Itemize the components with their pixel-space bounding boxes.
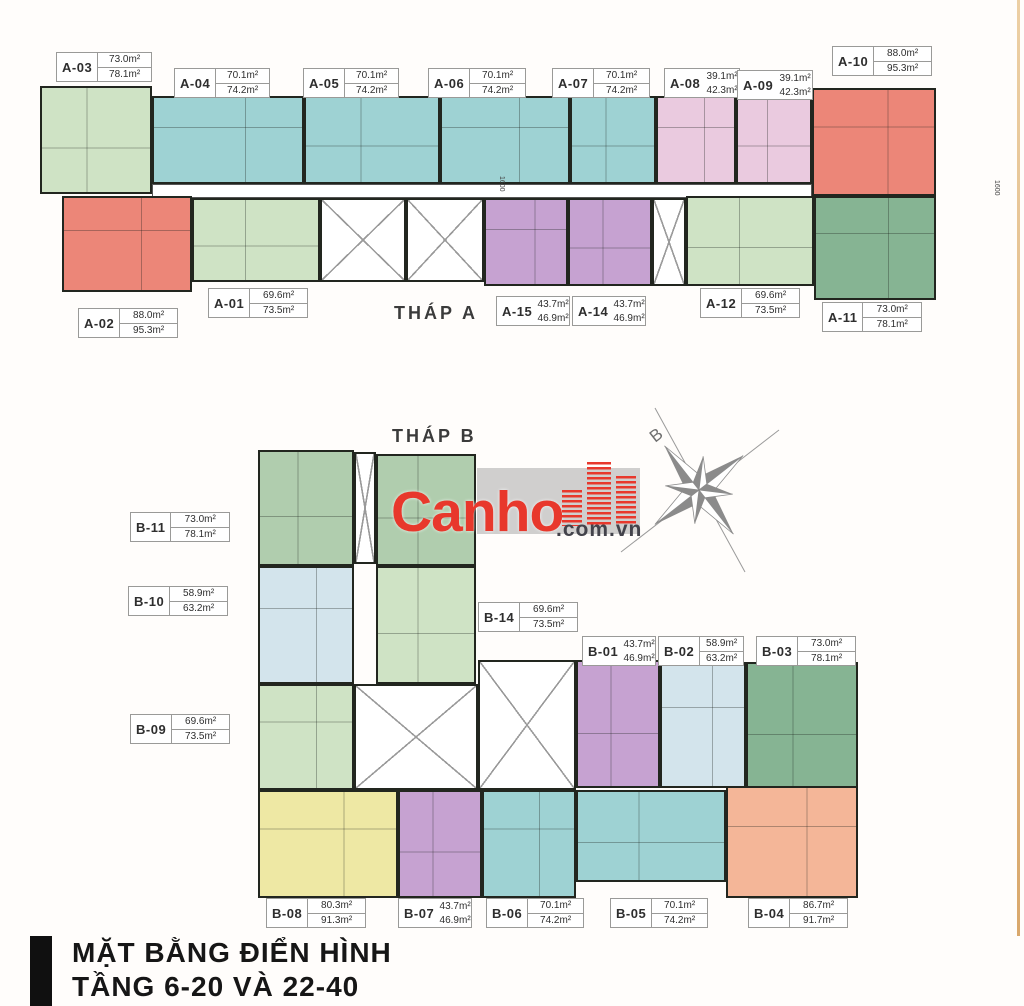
tower-a-label: THÁP A (394, 303, 478, 324)
unit-name: A-01 (209, 289, 249, 317)
unit-b-01 (576, 660, 660, 788)
unit-area-gross: 95.3m² (874, 62, 931, 76)
unit-area-gross: 73.5m² (520, 618, 577, 632)
unit-area-net: 39.1m² (705, 69, 739, 83)
unit-a-01 (192, 198, 320, 282)
unit-b-11 (258, 450, 354, 566)
unit-label-b-09: B-0969.6m²73.5m² (130, 714, 230, 744)
unit-label-a-04: A-0470.1m²74.2m² (174, 68, 270, 98)
unit-b-03 (746, 662, 858, 788)
unit-label-a-03: A-0373.0m²78.1m² (56, 52, 152, 82)
page-edge-line (1017, 0, 1020, 936)
unit-name: A-09 (738, 71, 778, 99)
unit-label-a-01: A-0169.6m²73.5m² (208, 288, 308, 318)
unit-areas: 69.6m²73.5m² (741, 289, 799, 317)
unit-areas: 88.0m²95.3m² (873, 47, 931, 75)
unit-areas: 80.3m²91.3m² (307, 899, 365, 927)
dimension-mark-2: 1600 (993, 180, 1000, 196)
unit-a-05 (304, 96, 440, 184)
unit-area-net: 80.3m² (308, 899, 365, 914)
unit-area-gross: 74.2m² (528, 914, 583, 928)
unit-area-gross: 78.1m² (863, 318, 921, 332)
unit-name: A-14 (573, 297, 613, 325)
core-b-lifts (478, 660, 576, 790)
unit-name: B-02 (659, 637, 699, 665)
title-block: MẶT BẰNG ĐIỂN HÌNH TẦNG 6-20 VÀ 22-40 (30, 936, 392, 1006)
unit-area-net: 43.7m² (537, 297, 569, 311)
unit-name: B-10 (129, 587, 169, 615)
unit-label-b-07: B-0743.7m²46.9m² (398, 898, 472, 928)
unit-area-net: 69.6m² (172, 715, 229, 730)
unit-area-gross: 42.3m² (778, 85, 812, 99)
unit-areas: 69.6m²73.5m² (171, 715, 229, 743)
unit-b-04 (726, 786, 858, 898)
unit-b-05 (576, 790, 726, 882)
unit-areas: 58.9m²63.2m² (699, 637, 743, 665)
unit-area-net: 73.0m² (863, 303, 921, 318)
unit-area-gross: 74.2m² (470, 84, 525, 98)
unit-area-gross: 95.3m² (120, 324, 177, 338)
unit-label-b-10: B-1058.9m²63.2m² (128, 586, 228, 616)
unit-area-net: 70.1m² (652, 899, 707, 914)
unit-areas: 73.0m²78.1m² (862, 303, 921, 331)
unit-label-b-14: B-1469.6m²73.5m² (478, 602, 578, 632)
unit-a-10 (812, 88, 936, 196)
unit-a-12 (686, 196, 814, 286)
unit-area-net: 70.1m² (594, 69, 649, 84)
unit-name: B-05 (611, 899, 651, 927)
unit-label-a-07: A-0770.1m²74.2m² (552, 68, 650, 98)
title-accent-bar (30, 936, 52, 1006)
unit-areas: 70.1m²74.2m² (651, 899, 707, 927)
unit-area-gross: 73.5m² (742, 304, 799, 318)
unit-area-net: 70.1m² (528, 899, 583, 914)
unit-area-gross: 63.2m² (170, 602, 227, 616)
unit-area-net: 73.0m² (171, 513, 229, 528)
unit-area-gross: 74.2m² (216, 84, 269, 98)
core-b-main (354, 684, 478, 790)
dimension-mark-1: 1600 (498, 176, 505, 192)
unit-area-gross: 91.3m² (308, 914, 365, 928)
unit-areas: 73.0m²78.1m² (170, 513, 229, 541)
unit-label-b-06: B-0670.1m²74.2m² (486, 898, 584, 928)
unit-area-gross: 78.1m² (171, 528, 229, 542)
unit-b-06 (482, 790, 576, 898)
core-a-lifts (406, 198, 484, 282)
unit-area-gross: 46.9m² (623, 651, 655, 665)
unit-b-09 (258, 684, 354, 790)
unit-a-11 (814, 196, 936, 300)
unit-name: A-08 (665, 69, 705, 97)
unit-areas: 88.0m²95.3m² (119, 309, 177, 337)
unit-label-a-09: A-0939.1m²42.3m² (737, 70, 813, 100)
unit-name: B-06 (487, 899, 527, 927)
unit-area-gross: 46.9m² (439, 913, 471, 927)
unit-areas: 70.1m²74.2m² (527, 899, 583, 927)
unit-label-a-06: A-0670.1m²74.2m² (428, 68, 526, 98)
unit-areas: 69.6m²73.5m² (519, 603, 577, 631)
unit-areas: 39.1m²42.3m² (705, 69, 739, 97)
unit-label-b-01: B-0143.7m²46.9m² (582, 636, 656, 666)
unit-area-gross: 91.7m² (790, 914, 847, 928)
unit-label-a-12: A-1269.6m²73.5m² (700, 288, 800, 318)
unit-areas: 70.1m²74.2m² (469, 69, 525, 97)
unit-name: B-07 (399, 899, 439, 927)
unit-areas: 43.7m²46.9m² (613, 297, 645, 325)
unit-areas: 73.0m²78.1m² (797, 637, 855, 665)
unit-area-net: 43.7m² (613, 297, 645, 311)
unit-areas: 70.1m²74.2m² (215, 69, 269, 97)
unit-label-a-11: A-1173.0m²78.1m² (822, 302, 922, 332)
unit-name: B-14 (479, 603, 519, 631)
unit-area-gross: 46.9m² (537, 311, 569, 325)
unit-areas: 69.6m²73.5m² (249, 289, 307, 317)
unit-label-a-02: A-0288.0m²95.3m² (78, 308, 178, 338)
unit-area-net: 88.0m² (120, 309, 177, 324)
unit-areas: 43.7m²46.9m² (439, 899, 471, 927)
unit-areas: 58.9m²63.2m² (169, 587, 227, 615)
unit-a-02 (62, 196, 192, 292)
unit-area-net: 69.6m² (742, 289, 799, 304)
unit-label-b-03: B-0373.0m²78.1m² (756, 636, 856, 666)
unit-b-02 (660, 662, 746, 788)
unit-area-net: 39.1m² (778, 71, 812, 85)
core-b-top (354, 452, 376, 564)
unit-label-a-15: A-1543.7m²46.9m² (496, 296, 570, 326)
unit-areas: 43.7m²46.9m² (537, 297, 569, 325)
core-a-stairs (320, 198, 406, 282)
unit-area-gross: 73.5m² (172, 730, 229, 744)
unit-area-net: 70.1m² (470, 69, 525, 84)
unit-a-08 (656, 96, 736, 184)
unit-name: A-04 (175, 69, 215, 97)
unit-area-gross: 42.3m² (705, 83, 739, 97)
unit-name: A-06 (429, 69, 469, 97)
unit-name: A-15 (497, 297, 537, 325)
core-a-stairs-2 (652, 198, 686, 286)
unit-label-a-05: A-0570.1m²74.2m² (303, 68, 399, 98)
unit-area-net: 73.0m² (98, 53, 151, 68)
unit-name: A-12 (701, 289, 741, 317)
unit-name: B-04 (749, 899, 789, 927)
unit-name: B-01 (583, 637, 623, 665)
unit-area-net: 73.0m² (798, 637, 855, 652)
unit-name: A-07 (553, 69, 593, 97)
unit-area-gross: 74.2m² (345, 84, 398, 98)
unit-area-gross: 63.2m² (700, 652, 743, 666)
unit-area-net: 86.7m² (790, 899, 847, 914)
unit-area-gross: 46.9m² (613, 311, 645, 325)
unit-areas: 70.1m²74.2m² (344, 69, 398, 97)
tower-b-label: THÁP B (392, 426, 477, 447)
unit-label-b-11: B-1173.0m²78.1m² (130, 512, 230, 542)
unit-label-a-14: A-1443.7m²46.9m² (572, 296, 646, 326)
unit-a-14 (568, 198, 652, 286)
unit-a-04 (152, 96, 304, 184)
page-title-line1: MẶT BẰNG ĐIỂN HÌNH (72, 936, 392, 970)
unit-area-gross: 74.2m² (652, 914, 707, 928)
unit-areas: 39.1m²42.3m² (778, 71, 812, 99)
unit-area-net: 43.7m² (623, 637, 655, 651)
unit-area-gross: 73.5m² (250, 304, 307, 318)
unit-area-gross: 78.1m² (798, 652, 855, 666)
unit-a-03 (40, 86, 152, 194)
unit-area-gross: 74.2m² (594, 84, 649, 98)
unit-b-07 (398, 790, 482, 898)
unit-area-net: 70.1m² (345, 69, 398, 84)
unit-label-b-02: B-0258.9m²63.2m² (658, 636, 744, 666)
unit-name: A-10 (833, 47, 873, 75)
unit-a-15 (484, 198, 568, 286)
unit-area-net: 88.0m² (874, 47, 931, 62)
unit-name: A-02 (79, 309, 119, 337)
unit-label-b-08: B-0880.3m²91.3m² (266, 898, 366, 928)
unit-areas: 73.0m²78.1m² (97, 53, 151, 81)
unit-name: A-03 (57, 53, 97, 81)
unit-area-net: 43.7m² (439, 899, 471, 913)
unit-areas: 70.1m²74.2m² (593, 69, 649, 97)
unit-name: B-09 (131, 715, 171, 743)
logo-brand-text: Canho (391, 479, 563, 545)
unit-b-10 (258, 566, 354, 684)
unit-b-14 (376, 566, 476, 684)
unit-name: B-11 (131, 513, 170, 541)
unit-name: A-05 (304, 69, 344, 97)
unit-a-09 (736, 96, 812, 184)
logo-buildings-icon (562, 462, 646, 526)
unit-areas: 43.7m²46.9m² (623, 637, 655, 665)
compass-north-letter: B (646, 424, 667, 446)
unit-name: B-03 (757, 637, 797, 665)
page-title-line2: TẦNG 6-20 VÀ 22-40 (72, 970, 392, 1004)
unit-area-gross: 78.1m² (98, 68, 151, 82)
unit-label-a-08: A-0839.1m²42.3m² (664, 68, 740, 98)
unit-a-06 (440, 96, 570, 184)
unit-area-net: 69.6m² (520, 603, 577, 618)
unit-name: A-11 (823, 303, 862, 331)
unit-label-b-04: B-0486.7m²91.7m² (748, 898, 848, 928)
unit-area-net: 58.9m² (700, 637, 743, 652)
unit-area-net: 58.9m² (170, 587, 227, 602)
unit-a-07 (570, 96, 656, 184)
unit-area-net: 69.6m² (250, 289, 307, 304)
unit-b-08 (258, 790, 398, 898)
logo-suffix-text: .com.vn (556, 518, 642, 542)
floorplan-canvas: A-0373.0m²78.1m²A-0470.1m²74.2m²A-0570.1… (0, 0, 1024, 1006)
unit-area-net: 70.1m² (216, 69, 269, 84)
unit-label-a-10: A-1088.0m²95.3m² (832, 46, 932, 76)
unit-name: B-08 (267, 899, 307, 927)
unit-areas: 86.7m²91.7m² (789, 899, 847, 927)
unit-label-b-05: B-0570.1m²74.2m² (610, 898, 708, 928)
